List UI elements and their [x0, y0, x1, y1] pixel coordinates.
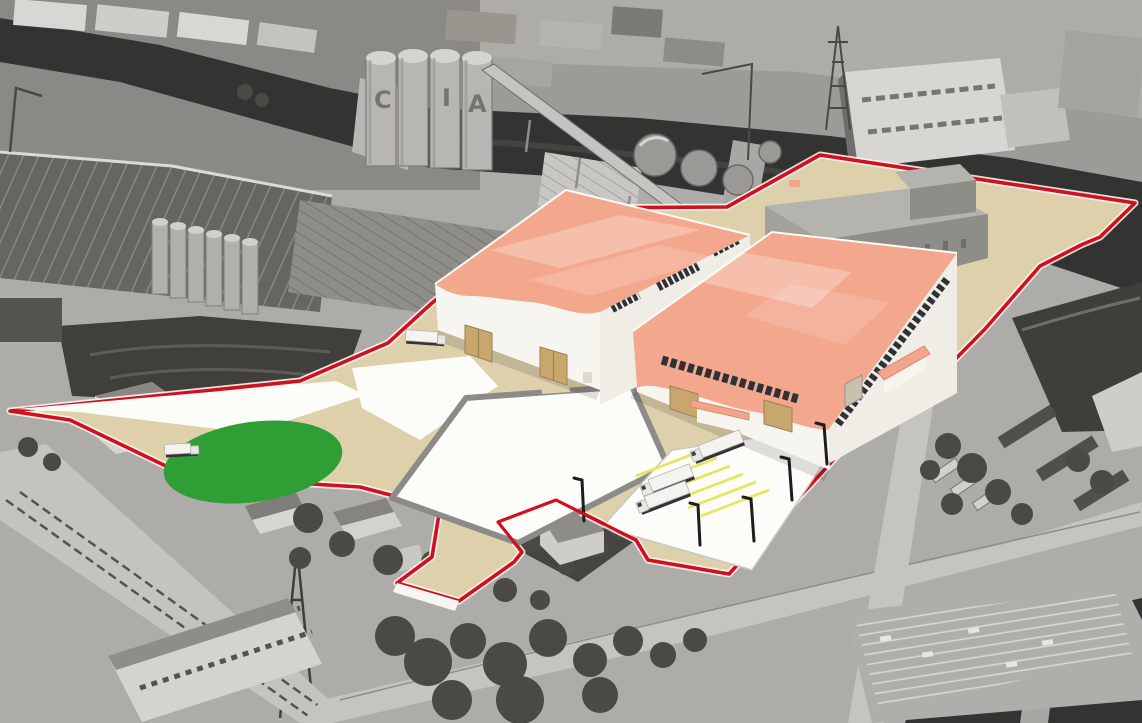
silo-letter-c: C — [374, 86, 392, 114]
w1-side-panel — [583, 372, 592, 383]
silo-letter-i: I — [442, 84, 451, 112]
aerial-masterplan-svg: C I A — [0, 0, 1142, 723]
silo-letter-a: A — [468, 90, 487, 118]
small-orange-roof — [789, 180, 800, 187]
site-rendering: C I A — [0, 0, 1142, 723]
